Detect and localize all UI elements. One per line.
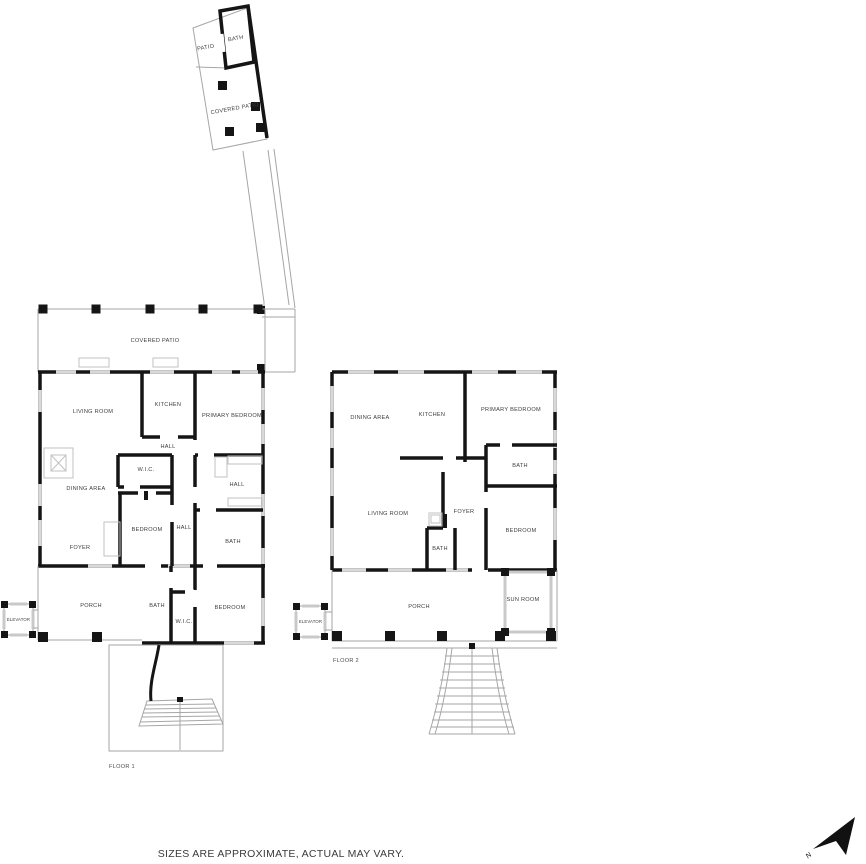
detached-structure: PATIO BATH COVERED PATIO: [193, 6, 267, 150]
floor1-name-label: FLOOR 1: [109, 764, 135, 770]
floor1-elevator: ELEVATOR: [1, 601, 38, 638]
detached-patio-label: PATIO: [197, 43, 215, 52]
floor1-bedroom-mid-label: BEDROOM: [132, 527, 163, 533]
north-label: N: [805, 851, 814, 860]
floor2-bath-upper-label: BATH: [512, 463, 528, 469]
floor1-wic-lower-label: W.I.C.: [176, 619, 193, 625]
floor1-hall-top-label: HALL: [160, 444, 175, 450]
walkway-path: [243, 149, 295, 372]
north-arrow-icon: [813, 817, 855, 855]
compass: N: [805, 817, 855, 860]
floor1-primary-bedroom-label: PRIMARY BEDROOM: [202, 413, 262, 419]
floor1-covered-patio-label: COVERED PATIO: [131, 338, 180, 344]
floor1-elevator-label: ELEVATOR: [7, 617, 30, 622]
floor2-bedroom-label: BEDROOM: [506, 528, 537, 534]
floor2-bath-lower-label: BATH: [432, 546, 448, 552]
floor2-living-room-label: LIVING ROOM: [368, 511, 408, 517]
floor1-hall-center-label: HALL: [176, 525, 191, 531]
size-disclaimer-text: SIZES ARE APPROXIMATE, ACTUAL MAY VARY.: [158, 848, 404, 860]
detached-bath-label: BATH: [228, 35, 244, 44]
floorplan-page: PATIO BATH COVERED PATIO COVERED PATIO: [0, 0, 866, 864]
floor2-porch-label: PORCH: [408, 604, 430, 610]
floor2-foyer-label: FOYER: [454, 509, 475, 515]
floor1-living-room-label: LIVING ROOM: [73, 409, 113, 415]
floor2-primary-bedroom-label: PRIMARY BEDROOM: [481, 407, 541, 413]
floor2-stairs: [429, 643, 515, 734]
floor1-bath-mid-label: BATH: [225, 539, 241, 545]
floor2-kitchen-label: KITCHEN: [419, 412, 446, 418]
floor1-porch-label: PORCH: [80, 603, 102, 609]
floor2-elevator-label: ELEVATOR: [299, 619, 322, 624]
floor1-bath-lower-label: BATH: [149, 603, 165, 609]
floorplan-canvas: PATIO BATH COVERED PATIO COVERED PATIO: [0, 0, 866, 864]
floor1-bedroom-lower-label: BEDROOM: [215, 605, 246, 611]
floor2-plan: DINING AREA KITCHEN PRIMARY BEDROOM BATH…: [293, 372, 557, 734]
floor2-dining-area-label: DINING AREA: [350, 415, 389, 421]
floor2-elevator: ELEVATOR: [293, 603, 332, 640]
floor1-wic-top-label: W.I.C.: [138, 467, 155, 473]
floor1-hall-right-label: HALL: [229, 482, 244, 488]
floor1-stairs: [109, 645, 223, 751]
floor2-sun-room-label: SUN ROOM: [506, 597, 539, 603]
floor1-kitchen-label: KITCHEN: [155, 402, 182, 408]
floor1-plan: COVERED PATIO: [1, 305, 265, 771]
floor1-dining-area-label: DINING AREA: [66, 486, 105, 492]
floor1-foyer-label: FOYER: [70, 545, 91, 551]
floor2-name-label: FLOOR 2: [333, 658, 359, 664]
